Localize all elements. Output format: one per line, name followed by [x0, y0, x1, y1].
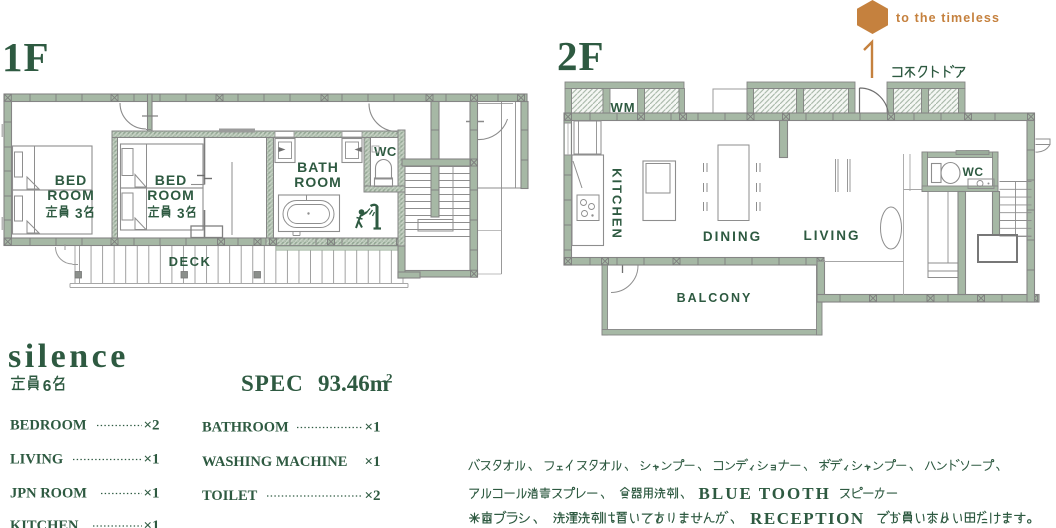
svg-text:KITCHEN: KITCHEN — [610, 168, 625, 240]
svg-text:2: 2 — [386, 371, 393, 386]
svg-text:silence: silence — [8, 338, 129, 375]
svg-text:2F: 2F — [557, 33, 605, 79]
svg-text:BLUE TOOTH: BLUE TOOTH — [699, 484, 831, 503]
svg-text:LIVING: LIVING — [10, 452, 63, 468]
svg-text:1F: 1F — [2, 34, 50, 80]
svg-text:×1: ×1 — [144, 518, 160, 528]
svg-text:×1: ×1 — [144, 486, 160, 502]
svg-text:WC: WC — [963, 165, 984, 179]
svg-text:BED: BED — [55, 172, 88, 188]
svg-text:RECEPTION: RECEPTION — [750, 509, 865, 528]
svg-text:ROOM: ROOM — [294, 174, 342, 190]
svg-text:DINING: DINING — [703, 229, 762, 244]
svg-text:LIVING: LIVING — [803, 228, 860, 243]
svg-text:93.46m: 93.46m — [318, 371, 389, 396]
svg-text:TOILET: TOILET — [202, 488, 258, 504]
svg-text:BALCONY: BALCONY — [677, 291, 753, 305]
svg-text:BATHROOM: BATHROOM — [202, 420, 289, 436]
svg-text:×2: ×2 — [365, 488, 381, 504]
svg-text:×1: ×1 — [144, 452, 160, 468]
svg-text:ROOM: ROOM — [47, 187, 95, 203]
svg-text:KITCHEN: KITCHEN — [10, 518, 79, 528]
svg-text:×2: ×2 — [144, 418, 160, 434]
svg-text:JPN ROOM: JPN ROOM — [10, 486, 87, 502]
svg-text:6: 6 — [43, 378, 52, 395]
svg-text:SPEC: SPEC — [241, 371, 304, 396]
svg-text:ROOM: ROOM — [147, 187, 195, 203]
svg-text:3: 3 — [75, 206, 83, 221]
svg-text:×1: ×1 — [365, 420, 381, 436]
svg-text:WASHING MACHINE: WASHING MACHINE — [202, 454, 347, 470]
svg-text:3: 3 — [177, 206, 185, 221]
svg-text:DECK: DECK — [169, 254, 212, 269]
svg-text:BATH: BATH — [297, 159, 339, 175]
svg-text:×1: ×1 — [365, 454, 381, 470]
svg-text:BED: BED — [155, 172, 188, 188]
svg-text:BEDROOM: BEDROOM — [10, 418, 87, 434]
svg-text:to the timeless: to the timeless — [896, 11, 1000, 25]
